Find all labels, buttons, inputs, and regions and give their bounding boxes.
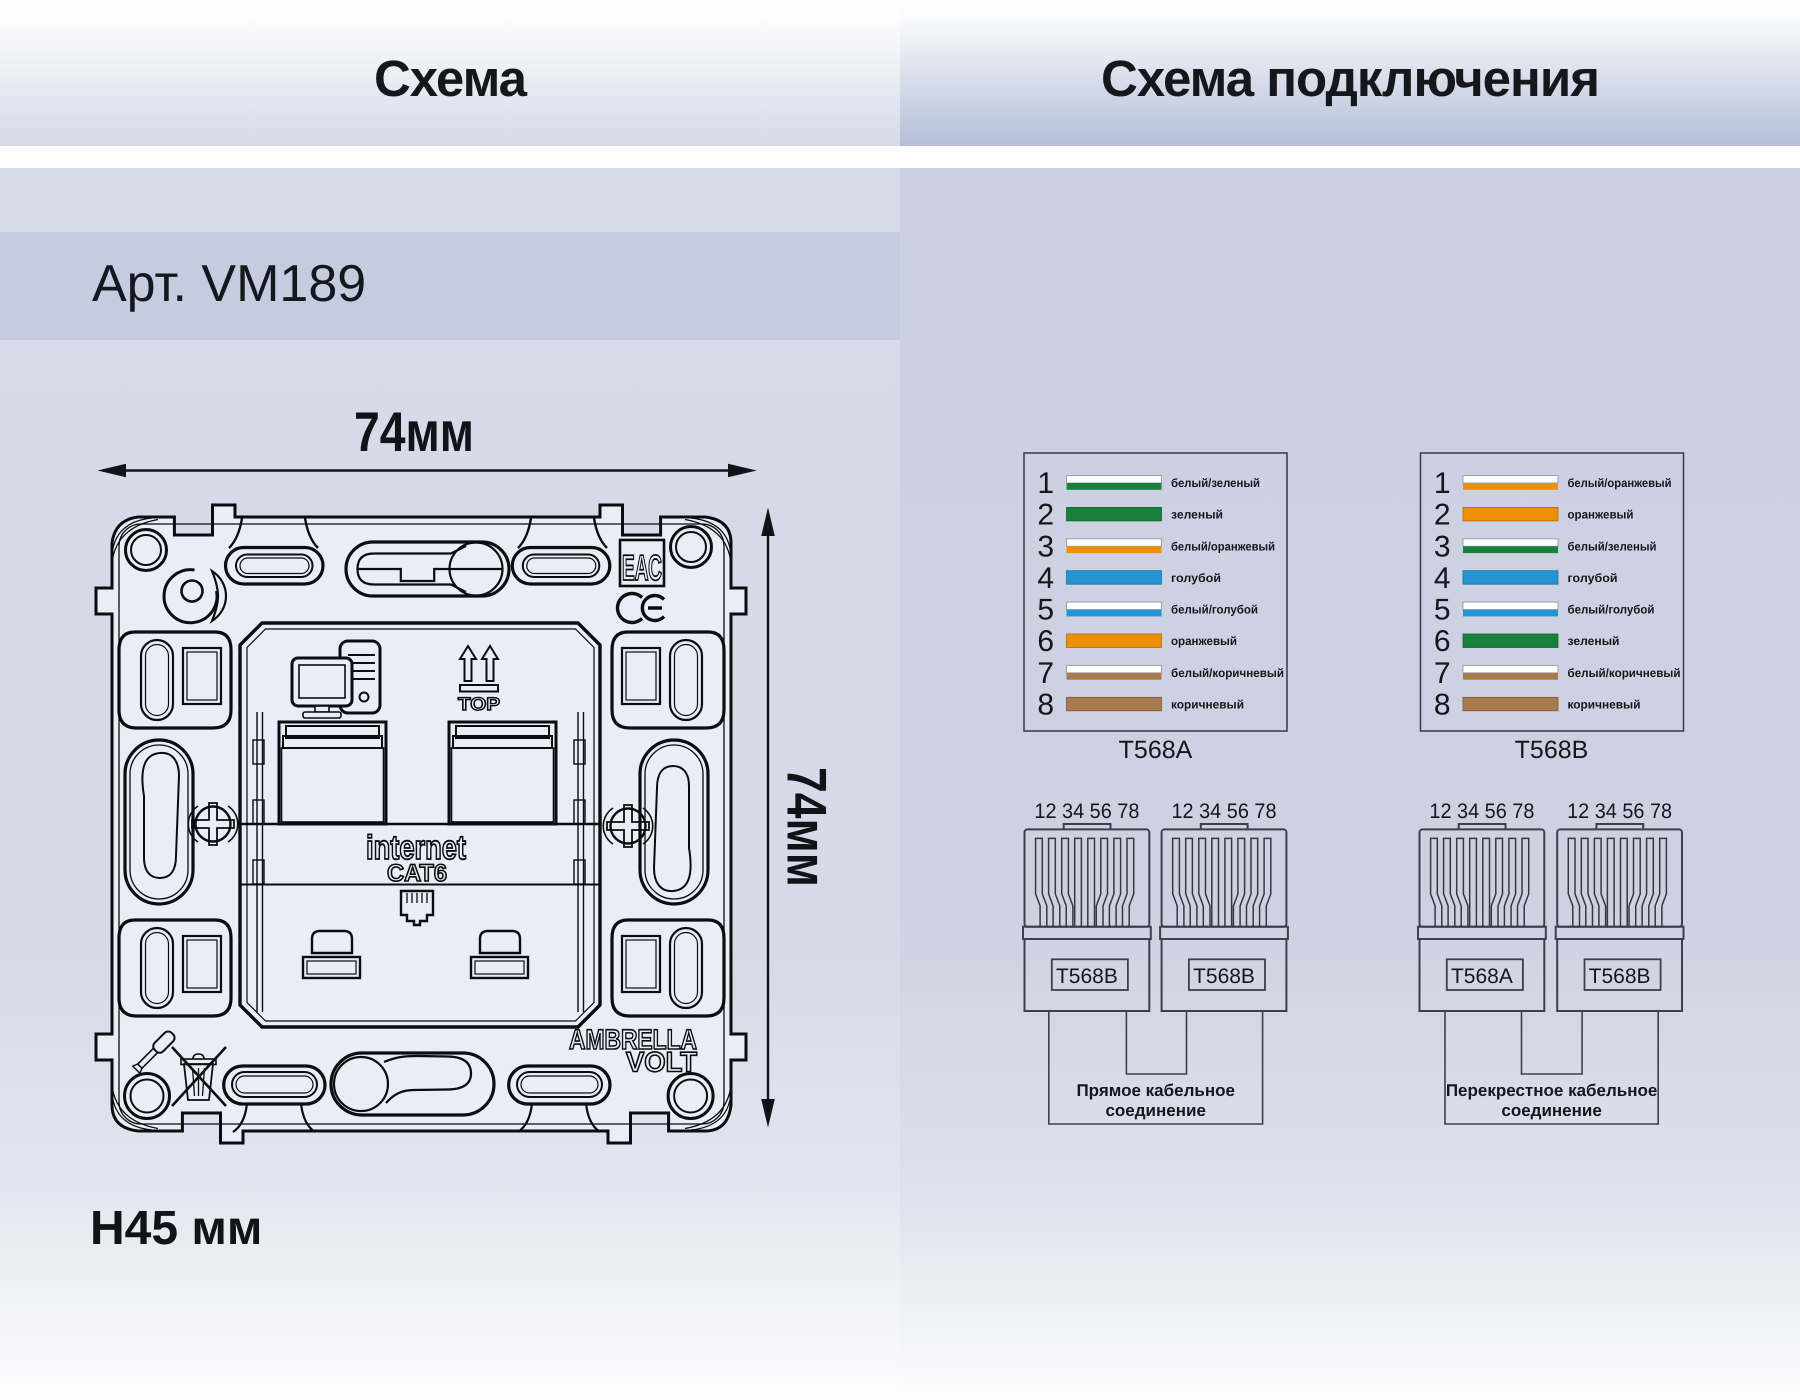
svg-text:12 34 56 78: 12 34 56 78 [1567, 800, 1672, 823]
svg-text:12 34 56 78: 12 34 56 78 [1429, 800, 1534, 823]
svg-text:VOLT: VOLT [626, 1047, 697, 1078]
svg-text:6: 6 [1434, 625, 1451, 658]
svg-text:T568B: T568B [1515, 736, 1589, 764]
svg-text:6: 6 [1037, 625, 1054, 658]
svg-text:Н45 мм: Н45 мм [90, 1202, 262, 1255]
svg-text:белый/голубой: белый/голубой [1568, 603, 1655, 617]
svg-text:белый/коричневый: белый/коричневый [1171, 666, 1284, 680]
svg-text:ЕАС: ЕАС [622, 547, 662, 588]
svg-text:7: 7 [1434, 657, 1451, 690]
svg-text:4: 4 [1037, 562, 1054, 595]
svg-text:белый/зеленый: белый/зеленый [1568, 539, 1657, 553]
svg-text:голубой: голубой [1568, 571, 1618, 585]
svg-text:соединение: соединение [1105, 1101, 1205, 1120]
svg-text:7: 7 [1037, 657, 1054, 690]
svg-text:оранжевый: оранжевый [1568, 508, 1634, 522]
svg-text:голубой: голубой [1171, 571, 1221, 585]
svg-text:1: 1 [1037, 467, 1054, 500]
svg-text:12 34 56 78: 12 34 56 78 [1034, 800, 1139, 823]
svg-text:3: 3 [1434, 530, 1451, 563]
svg-text:белый/зеленый: белый/зеленый [1171, 476, 1260, 490]
svg-text:2: 2 [1434, 499, 1451, 532]
svg-text:8: 8 [1434, 689, 1451, 722]
svg-text:T568B: T568B [1056, 965, 1118, 988]
svg-text:3: 3 [1037, 530, 1054, 563]
svg-text:T568A: T568A [1451, 965, 1513, 988]
svg-text:белый/коричневый: белый/коричневый [1568, 666, 1681, 680]
svg-text:зеленый: зеленый [1568, 634, 1620, 648]
svg-text:5: 5 [1037, 594, 1054, 627]
svg-text:белый/оранжевый: белый/оранжевый [1171, 539, 1275, 553]
svg-text:CAT6: CAT6 [387, 860, 447, 887]
svg-text:коричневый: коричневый [1568, 698, 1641, 712]
svg-text:TOP: TOP [458, 694, 500, 714]
svg-text:оранжевый: оранжевый [1171, 634, 1237, 648]
svg-text:12 34 56 78: 12 34 56 78 [1172, 800, 1277, 823]
svg-text:T568B: T568B [1589, 965, 1651, 988]
svg-text:соединение: соединение [1501, 1101, 1601, 1120]
svg-text:74мм: 74мм [776, 767, 839, 887]
svg-text:5: 5 [1434, 594, 1451, 627]
svg-text:белый/оранжевый: белый/оранжевый [1568, 476, 1672, 490]
svg-text:T568A: T568A [1119, 736, 1193, 764]
svg-text:4: 4 [1434, 562, 1451, 595]
svg-text:коричневый: коричневый [1171, 698, 1244, 712]
svg-text:74мм: 74мм [354, 400, 474, 463]
svg-text:8: 8 [1037, 689, 1054, 722]
svg-text:белый/голубой: белый/голубой [1171, 603, 1258, 617]
svg-text:T568B: T568B [1193, 965, 1255, 988]
svg-text:Прямое кабельное: Прямое кабельное [1076, 1081, 1235, 1100]
svg-text:зеленый: зеленый [1171, 508, 1223, 522]
svg-text:1: 1 [1434, 467, 1451, 500]
svg-text:Перекрестное кабельное: Перекрестное кабельное [1446, 1081, 1658, 1100]
svg-text:2: 2 [1037, 499, 1054, 532]
